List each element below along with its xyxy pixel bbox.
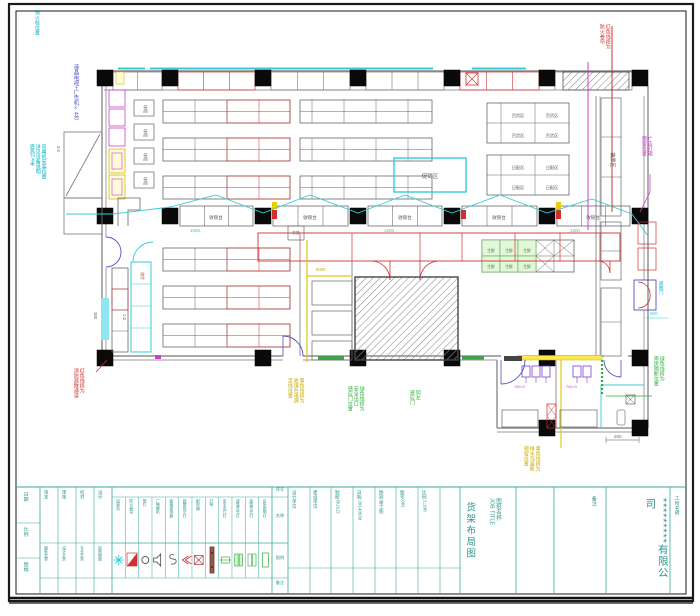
cell-label: 促销区 <box>422 172 439 180</box>
cell-label: 收银台 <box>209 214 223 221</box>
door-arc <box>501 360 525 384</box>
drawing-sheet: 收银台收银台收银台收银台收银台百货区百货区百货区百货区日配区日配区日配区日配区生… <box>0 0 700 616</box>
fixture-magenta <box>109 90 125 107</box>
legend-symbol <box>154 554 161 566</box>
column <box>97 208 113 224</box>
cell-label: 生鲜 <box>523 248 531 253</box>
door-arc <box>604 360 621 377</box>
cell-label: 日配区 <box>546 165 559 171</box>
legend-symbol <box>253 554 257 566</box>
cell-label: 收银台 <box>398 214 412 221</box>
legend-symbol <box>235 554 239 566</box>
fresh-cell <box>482 240 500 256</box>
legend-symbol <box>170 555 176 565</box>
cell-label: 百货区 <box>546 132 559 139</box>
column <box>444 70 460 86</box>
water-heater <box>617 410 625 425</box>
wall-shelf-bay <box>460 72 539 90</box>
legend-symbol <box>182 556 191 564</box>
cell-label: 生鲜 <box>487 264 495 269</box>
cell-label: 生鲜 <box>487 248 495 253</box>
cell-label: 冰柜 <box>142 177 149 185</box>
cell-label: 生鲜 <box>523 264 531 269</box>
fixture-yellow <box>109 175 125 199</box>
floor-plan-svg: 收银台收银台收银台收银台收银台百货区百货区百货区百货区日配区日配区日配区日配区生… <box>0 0 700 616</box>
fixture-magenta <box>109 128 125 146</box>
cell-label: 冰柜 <box>142 105 149 113</box>
cell-label: 生鲜 <box>505 248 513 253</box>
green-segment <box>318 357 344 360</box>
column <box>632 420 648 436</box>
column-mark <box>461 210 466 219</box>
back-rooms <box>258 233 620 261</box>
cell-label: 冰柜 <box>142 153 149 161</box>
cell-label: 收银台 <box>303 214 317 221</box>
purple-fixture <box>573 366 581 377</box>
purple-fixture <box>542 366 550 377</box>
column <box>255 70 271 86</box>
column <box>632 70 648 86</box>
entry-door-arc <box>106 237 121 252</box>
wall-cabinet <box>638 248 656 270</box>
yellow-band <box>518 356 602 361</box>
column-mark <box>556 202 561 209</box>
escalator-mark <box>101 298 109 340</box>
legend-symbol <box>142 557 149 564</box>
legend-symbol <box>211 566 213 568</box>
cell-label: 收银台 <box>586 214 600 221</box>
fixture-magenta <box>109 109 125 126</box>
dark-wall-seg <box>504 356 522 361</box>
plan-rect <box>112 289 128 310</box>
column-mark <box>556 210 561 219</box>
cell-label: 百货区 <box>512 112 525 119</box>
cell-label: 百货区 <box>546 112 559 119</box>
legend-symbol <box>211 552 213 554</box>
cell-label: 百货区 <box>512 132 525 139</box>
cell-label: 防损 <box>293 230 301 235</box>
column <box>632 208 648 224</box>
column <box>97 70 113 86</box>
store-room <box>312 311 352 335</box>
column-mark <box>272 210 277 219</box>
door-arc <box>133 242 153 262</box>
purple-fixture <box>583 366 591 377</box>
ramp-diagonal <box>66 134 100 196</box>
fresh-cell <box>482 256 500 272</box>
legend-symbol <box>127 553 137 566</box>
cable-zigzag <box>113 195 632 214</box>
ramp-landing <box>64 198 102 234</box>
wall-shelf-bay <box>271 72 350 90</box>
purple-fixture <box>522 366 530 377</box>
column <box>255 350 271 366</box>
fixture-yellow <box>109 149 125 173</box>
wall-shelf-bay <box>178 72 255 90</box>
cell-label: 蔬果区 <box>609 152 616 167</box>
column <box>539 70 555 86</box>
column <box>162 208 178 224</box>
hatched-core <box>355 277 458 360</box>
store-room <box>312 281 352 305</box>
fresh-cell <box>518 240 536 256</box>
column <box>632 350 648 366</box>
cell-label: 日配区 <box>512 185 525 191</box>
cell-label: 日配区 <box>512 165 525 171</box>
inner-frame <box>16 11 686 594</box>
entry-door-arc <box>106 252 121 267</box>
magenta-mark <box>155 355 161 359</box>
wall-fixture <box>116 72 124 84</box>
legend-symbol <box>248 554 252 566</box>
work-table <box>560 410 597 427</box>
purple-fixture <box>532 366 540 377</box>
legend-symbol <box>262 553 268 567</box>
legend-symbol <box>210 547 214 573</box>
cell-label: 日配区 <box>546 185 559 191</box>
work-table <box>502 410 538 427</box>
green-segment <box>462 357 484 360</box>
cell-label: 冰柜 <box>142 129 149 137</box>
column <box>350 70 366 86</box>
cell-label: 收货 <box>140 272 145 280</box>
wall-shelf-bay <box>366 72 444 90</box>
cell-label: 生鲜 <box>505 264 513 269</box>
fresh-cell <box>518 256 536 272</box>
column <box>162 70 178 86</box>
column <box>97 350 113 366</box>
stair-hatch <box>563 72 629 90</box>
legend-symbol <box>239 554 243 566</box>
cell-label: 收银台 <box>492 214 506 221</box>
